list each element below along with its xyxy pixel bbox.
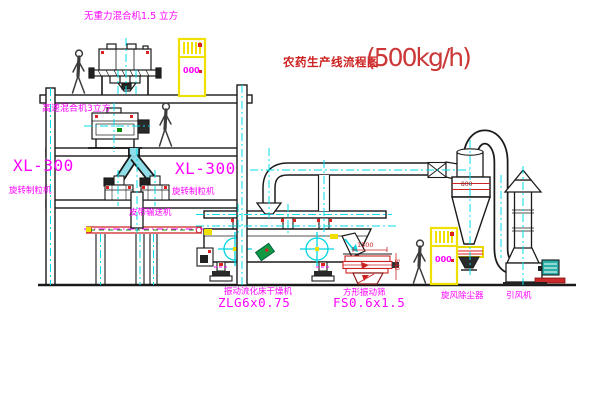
belt-conveyor: [84, 227, 206, 233]
conveyor-supports: [96, 234, 157, 285]
label-gravity-free-mixer: 无重力混合机1.5 立方: [84, 12, 178, 22]
dryer-feet: [210, 262, 334, 281]
high-speed-mixer: [88, 108, 149, 148]
label-cyclone: 旋风除尘器: [441, 292, 484, 301]
label-fan: 引风机: [506, 292, 532, 301]
gravity-free-mixer: [89, 44, 161, 95]
worker-figure-middle: [160, 103, 172, 146]
worker-figure-ground: [414, 240, 426, 283]
worker-figure-top: [73, 50, 85, 93]
label-granulator-right-name: 旋转制粒机: [172, 188, 215, 197]
diagram-title: 农药生产线流程图: [283, 54, 379, 70]
diagram-canvas: 农药生产线流程图 (500kg/h) 无重力混合机1.5 立方 高速混合机3立方…: [0, 0, 600, 403]
dimension-cyclone-diameter: 800: [461, 182, 472, 188]
cabinet-2-display: 000: [435, 256, 452, 264]
cabinet-1-display: 000: [183, 67, 200, 75]
diagram-capacity: (500kg/h): [366, 43, 470, 72]
label-sieve-model: FS0.6x1.5: [333, 297, 405, 310]
label-granulator-right-model: XL-300: [175, 161, 236, 177]
dimension-sieve-length: 1500: [357, 242, 374, 249]
label-high-speed-mixer: 高速混合机3立方: [42, 105, 111, 114]
label-dryer-model: ZLG6x0.75: [218, 297, 290, 310]
label-granulator-left-model: XL-300: [13, 158, 74, 174]
induced-draft-fan: [503, 260, 565, 285]
label-granulator-left-name: 旋转制粒机: [9, 187, 52, 196]
dimension-sieve-height: 540: [393, 259, 399, 270]
label-belt-conveyor: 皮带输送机: [129, 209, 172, 218]
